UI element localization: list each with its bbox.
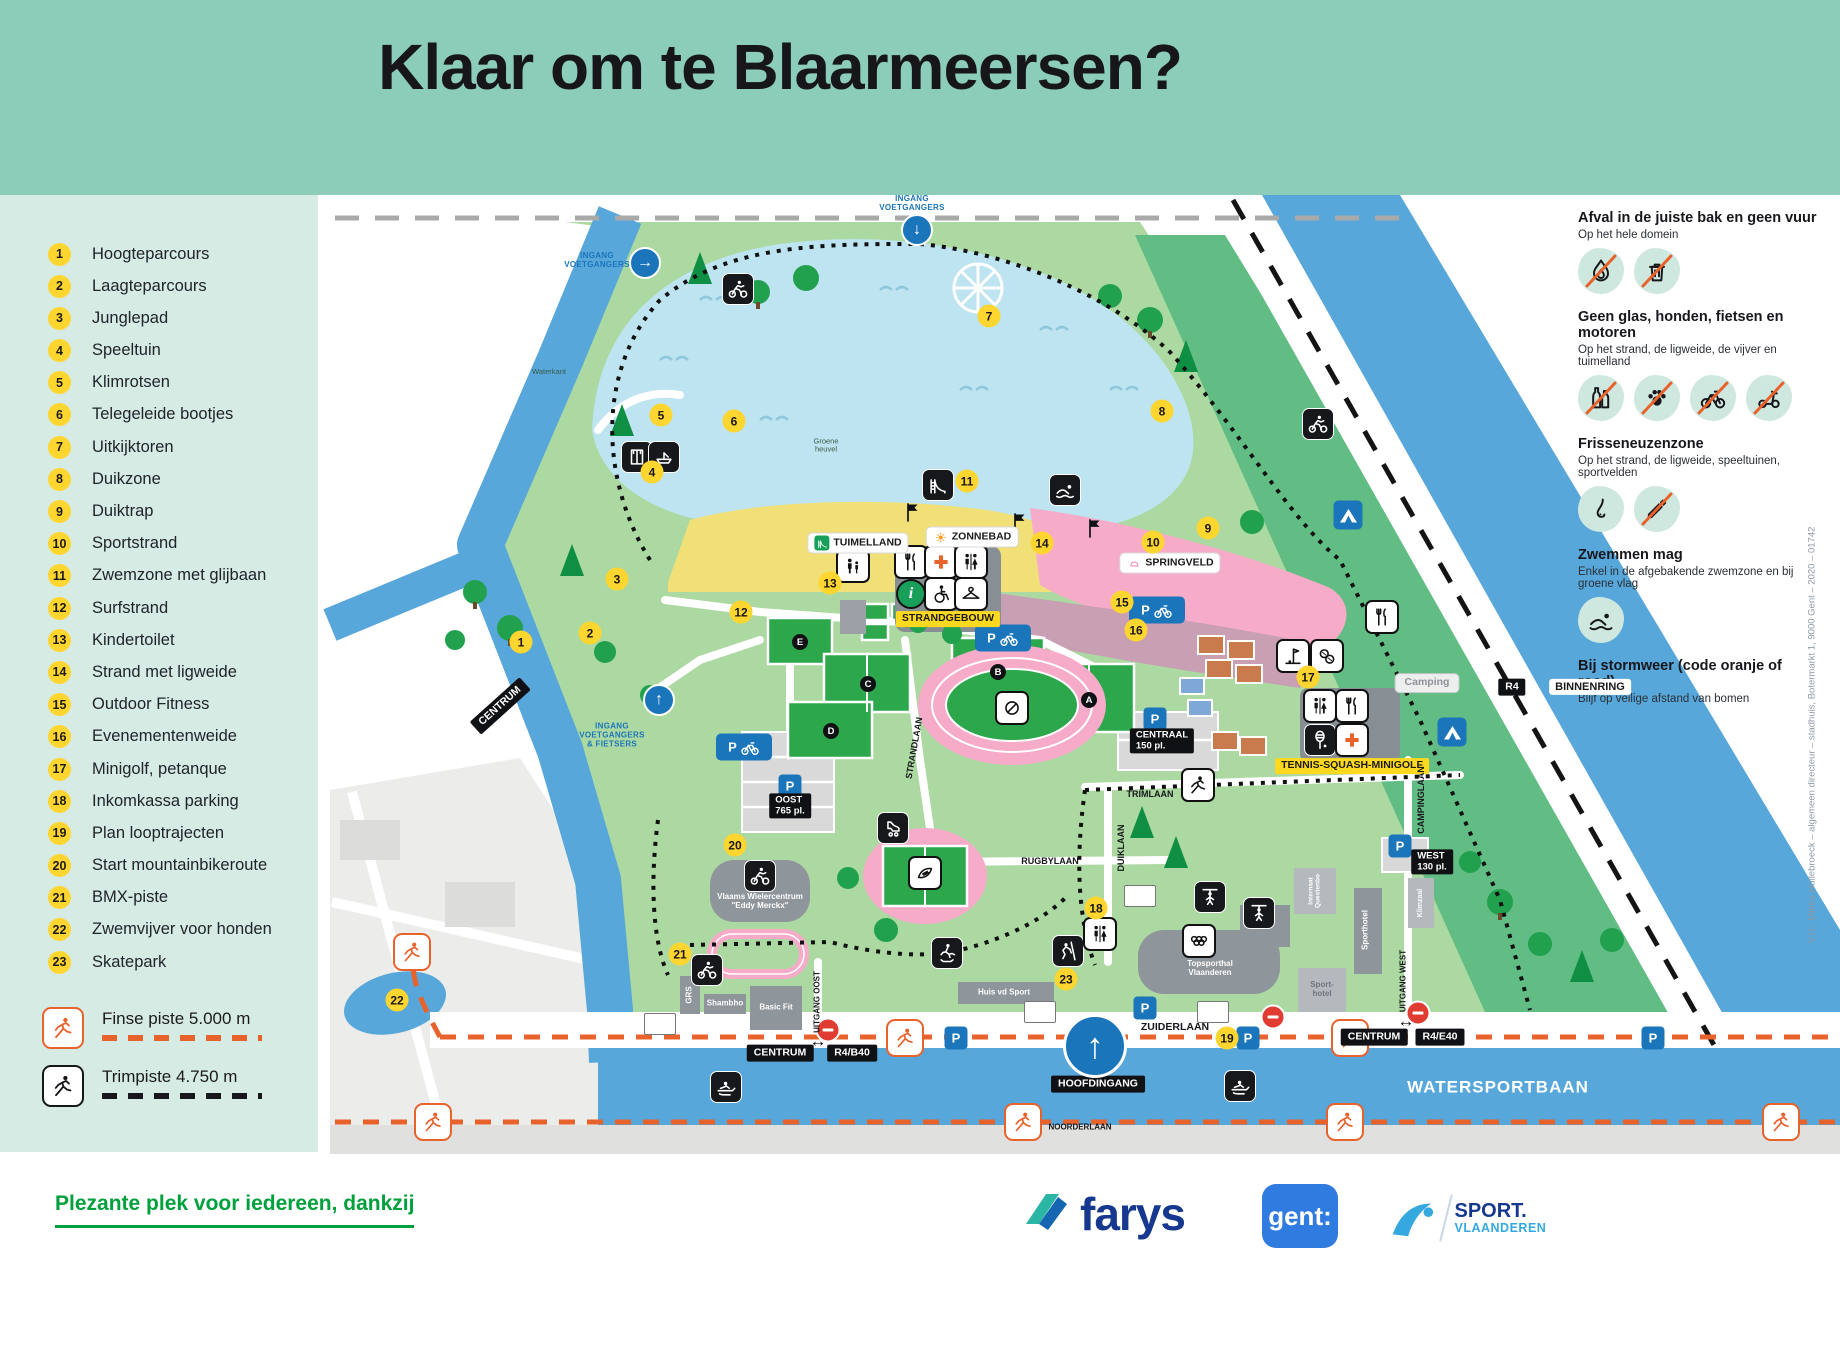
- legend-item-19: 19Plan looptrajecten: [48, 822, 272, 844]
- squash-icon: [1304, 724, 1336, 756]
- farys-icon: [1018, 1186, 1070, 1242]
- map-marker-20: 20: [724, 834, 747, 857]
- legend-item-18: 18Inkomkassa parking: [48, 790, 272, 812]
- roller-skate-icon: [877, 812, 909, 844]
- legend-number-badge: 6: [48, 403, 71, 426]
- entrance-arrow-icon: →: [629, 247, 661, 279]
- logo-divider: [1439, 1195, 1452, 1242]
- rule-title: Afval in de juiste bak en geen vuur: [1578, 210, 1818, 226]
- legend-item-label: Laagteparcours: [92, 277, 207, 296]
- legend-number-badge: 11: [48, 564, 71, 587]
- spring-icon: [1126, 556, 1141, 571]
- legend-number-badge: 4: [48, 339, 71, 362]
- legend-number-badge: 20: [48, 854, 71, 877]
- bus-stop-icon: [1124, 885, 1156, 907]
- rule-title: Frisseneuzenzone: [1578, 436, 1818, 452]
- map-label: STRANDGEBOUW: [896, 611, 1000, 627]
- flag-icon: [1082, 515, 1108, 541]
- legend-number-badge: 13: [48, 629, 71, 652]
- rule-section: Afval in de juiste bak en geen vuurOp he…: [1578, 210, 1818, 294]
- legend-item-label: Inkomkassa parking: [92, 792, 239, 811]
- route-label: Finse piste 5.000 m: [102, 1007, 262, 1029]
- map-label: Vlaams Wielercentrum "Eddy Merckx": [717, 893, 803, 911]
- restaurant-icon: [1335, 689, 1369, 723]
- legend-list: 1Hoogteparcours2Laagteparcours3Junglepad…: [48, 243, 272, 983]
- legend-number-badge: 14: [48, 661, 71, 684]
- rowing-icon: [1224, 1070, 1256, 1102]
- rule-subtitle: Op het strand, de ligweide, speeltuinen,…: [1578, 455, 1818, 479]
- no-litter-icon: [1634, 248, 1680, 294]
- rule-section: Geen glas, honden, fietsen en motorenOp …: [1578, 309, 1818, 421]
- map-label: OOST 765 pl.: [769, 793, 811, 818]
- legend-item-12: 12Surfstrand: [48, 597, 272, 619]
- camping-icon: [1334, 501, 1363, 530]
- playground-icon: [836, 549, 870, 583]
- legend-item-16: 16Evenementenweide: [48, 726, 272, 748]
- map-label: UITGANG WEST: [1400, 950, 1409, 1012]
- sport-wordmark-line2: VLAANDEREN: [1455, 1222, 1547, 1235]
- legend-number-badge: 15: [48, 693, 71, 716]
- no-fire-icon: [1578, 248, 1624, 294]
- legend-item-7: 7Uitkijktoren: [48, 436, 272, 458]
- legend-item-23: 23Skatepark: [48, 951, 272, 973]
- bike-parking-icon: P: [975, 625, 1031, 652]
- route-runner-icon: [42, 1065, 84, 1107]
- finse-piste-icon: [1762, 1103, 1800, 1141]
- rule-title: Zwemmen mag: [1578, 547, 1818, 563]
- legend-item-4: 4Speeltuin: [48, 340, 272, 362]
- route-dash-sample: [102, 1093, 262, 1099]
- first-aid-icon: [924, 545, 958, 579]
- finse-piste-icon: [393, 933, 431, 971]
- legend-item-label: Junglepad: [92, 309, 168, 328]
- waterslide-icon: [922, 469, 954, 501]
- map-label: UITGANG OOST: [814, 971, 823, 1033]
- map-label: CAMPINGLAAN: [1416, 766, 1426, 834]
- parking-icon: P: [1134, 997, 1157, 1020]
- map-label: INGANG VOETGANGERS & FIETSERS: [579, 723, 645, 750]
- no-entry-icon: [1261, 1005, 1286, 1030]
- map-label: Topsporthal Vlaanderen: [1187, 960, 1233, 978]
- map-label: WATERSPORTBAAN: [1407, 1077, 1589, 1096]
- legend-number-badge: 16: [48, 725, 71, 748]
- legend-item-label: Strand met ligweide: [92, 663, 237, 682]
- map-marker-5: 5: [650, 404, 673, 427]
- legend-item-3: 3Junglepad: [48, 307, 272, 329]
- legend-item-15: 15Outdoor Fitness: [48, 694, 272, 716]
- map-label: INGANG VOETGANGERS: [879, 195, 945, 213]
- map-label: CENTRUM: [1341, 1029, 1408, 1046]
- map-marker-15: 15: [1111, 591, 1134, 614]
- legend-item-label: Duiktrap: [92, 502, 153, 521]
- map-marker-23: 23: [1055, 968, 1078, 991]
- trimpiste-icon: [1181, 768, 1215, 802]
- athletics-icon: [995, 691, 1029, 725]
- legend-number-badge: 1: [48, 243, 71, 266]
- route-dash-sample: [102, 1035, 262, 1041]
- map-label: Basic Fit: [759, 1004, 792, 1013]
- gent-wordmark: gent:: [1268, 1201, 1332, 1232]
- wc-icon: [954, 545, 988, 579]
- legend-number-badge: 18: [48, 790, 71, 813]
- legend-number-badge: 7: [48, 436, 71, 459]
- finse-piste-icon: [886, 1019, 924, 1057]
- map-marker-9: 9: [1197, 517, 1220, 540]
- sport-vlaanderen-icon: [1385, 1192, 1437, 1244]
- map-label: Shambho: [707, 1000, 743, 1009]
- map-marker-12: 12: [730, 601, 753, 624]
- legend-item-label: Duikzone: [92, 470, 161, 489]
- legend-item-20: 20Start mountainbikeroute: [48, 855, 272, 877]
- map-marker-10: 10: [1142, 531, 1165, 554]
- map-marker-13: 13: [819, 572, 842, 595]
- route-legend: Finse piste 5.000 mTrimpiste 4.750 m: [42, 1007, 262, 1123]
- finse-piste-icon: [1004, 1103, 1042, 1141]
- route-legend-item: Trimpiste 4.750 m: [42, 1065, 262, 1107]
- rules-panel: Afval in de juiste bak en geen vuurOp he…: [1578, 210, 1818, 720]
- map-marker-17: 17: [1297, 666, 1320, 689]
- sun-icon: [933, 530, 948, 545]
- finse-piste-icon: [414, 1103, 452, 1141]
- gymnastics-icon: [1243, 897, 1275, 929]
- legend-item-label: Plan looptrajecten: [92, 824, 224, 843]
- bus-stop-icon: [1197, 1001, 1229, 1023]
- map-label: TUIMELLAND: [808, 534, 907, 553]
- rule-section: FrisseneuzenzoneOp het strand, de ligwei…: [1578, 436, 1818, 532]
- legend-item-11: 11Zwemzone met glijbaan: [48, 565, 272, 587]
- map-marker-22: 22: [386, 989, 409, 1012]
- field-letter-B: B: [990, 664, 1006, 680]
- legend-number-badge: 9: [48, 500, 71, 523]
- parking-icon: P: [945, 1027, 968, 1050]
- legend-item-label: Telegeleide bootjes: [92, 405, 233, 424]
- mountainbike-route-icon: [722, 273, 754, 305]
- legend-item-2: 2Laagteparcours: [48, 275, 272, 297]
- legend-number-badge: 2: [48, 275, 71, 298]
- sport-wordmark-line1: SPORT.: [1455, 1201, 1547, 1222]
- footer-tagline: Plezante plek voor iedereen, dankzij: [55, 1192, 414, 1228]
- map-marker-11: 11: [956, 470, 979, 493]
- route-runner-icon: [42, 1007, 84, 1049]
- map-marker-19: 19: [1216, 1027, 1239, 1050]
- sidebar-legend: 1Hoogteparcours2Laagteparcours3Junglepad…: [0, 195, 318, 1152]
- legend-number-badge: 19: [48, 822, 71, 845]
- map-label: Huis vd Sport: [978, 989, 1030, 998]
- rule-subtitle: Op het strand, de ligweide, de vijver en…: [1578, 344, 1818, 368]
- map-label: Sport- hotel: [1310, 981, 1334, 999]
- legend-item-10: 10Sportstrand: [48, 533, 272, 555]
- wc-icon: [1303, 689, 1337, 723]
- legend-item-8: 8Duikzone: [48, 468, 272, 490]
- rugby-icon: [908, 856, 942, 890]
- map-marker-3: 3: [606, 568, 629, 591]
- map-marker-14: 14: [1031, 532, 1054, 555]
- rule-title: Geen glas, honden, fietsen en motoren: [1578, 309, 1818, 341]
- field-letter-C: C: [860, 676, 876, 692]
- legend-item-label: Hoogteparcours: [92, 245, 209, 264]
- legend-item-label: Zwemvijver voor honden: [92, 920, 272, 939]
- cloakroom-icon: [954, 577, 988, 611]
- route-label: Trimpiste 4.750 m: [102, 1065, 262, 1087]
- map-label: R4/B40: [827, 1045, 877, 1062]
- slide-icon: [814, 536, 829, 551]
- bike-parking-icon: P: [716, 734, 772, 761]
- wc-icon: [1083, 917, 1117, 951]
- legend-item-label: Start mountainbikeroute: [92, 856, 267, 875]
- bus-stop-icon: [1024, 1001, 1056, 1023]
- finse-piste-icon: [1326, 1103, 1364, 1141]
- wheelchair-icon: [924, 577, 958, 611]
- legend-number-badge: 8: [48, 468, 71, 491]
- map-label: CENTRAAL 150 pl.: [1130, 728, 1194, 753]
- legend-item-1: 1Hoogteparcours: [48, 243, 272, 265]
- legend-number-badge: 21: [48, 886, 71, 909]
- entrance-arrow-icon: ↓: [901, 214, 933, 246]
- no-bikes-icon: [1690, 375, 1736, 421]
- map-label: ↔: [810, 1031, 827, 1050]
- map-marker-2: 2: [579, 622, 602, 645]
- legend-item-label: Minigolf, petanque: [92, 760, 227, 779]
- legend-item-14: 14Strand met ligweide: [48, 661, 272, 683]
- map-marker-16: 16: [1125, 619, 1148, 642]
- camping-icon: [1438, 718, 1467, 747]
- parking-icon: P: [1237, 1027, 1260, 1050]
- legend-item-label: Surfstrand: [92, 599, 168, 618]
- map-marker-1: 1: [510, 631, 533, 654]
- legend-item-label: Kindertoilet: [92, 631, 175, 650]
- parking-icon: P: [1144, 708, 1167, 731]
- parking-icon: P: [1389, 835, 1412, 858]
- legend-item-label: Evenementenweide: [92, 727, 237, 746]
- legend-item-label: Uitkijktoren: [92, 438, 174, 457]
- restaurant-icon: [1365, 600, 1399, 634]
- first-aid-icon: [1335, 723, 1369, 757]
- map-label: ZUIDERLAAN: [1141, 1022, 1209, 1034]
- legend-item-21: 21BMX-piste: [48, 887, 272, 909]
- map-marker-6: 6: [723, 410, 746, 433]
- legend-number-badge: 10: [48, 532, 71, 555]
- map-label: RUGBYLAAN: [1021, 856, 1079, 866]
- olympic-rings-icon: [1182, 924, 1216, 958]
- map-label: HOOFDINGANG: [1051, 1076, 1145, 1093]
- legend-item-22: 22Zwemvijver voor honden: [48, 919, 272, 941]
- sport-vlaanderen-logo: SPORT. VLAANDEREN: [1385, 1192, 1546, 1244]
- cycling-centre-icon: [744, 860, 776, 892]
- climbing-icon: [1052, 935, 1084, 967]
- map-label: Waterkant: [532, 368, 566, 376]
- map-marker-4: 4: [641, 461, 664, 484]
- map-label: SPRINGVELD: [1120, 554, 1219, 573]
- map-marker-18: 18: [1085, 897, 1108, 920]
- no-glass-icon: [1578, 375, 1624, 421]
- map-marker-7: 7: [978, 305, 1001, 328]
- map-label: WEST 130 pl.: [1411, 849, 1453, 874]
- map-label: Internaat Questenbo: [1308, 874, 1323, 908]
- parking-icon: P: [1642, 1027, 1665, 1050]
- map-label: ZONNEBAD: [927, 528, 1018, 547]
- skateboard-icon: [931, 937, 963, 969]
- map-label: TENNIS-SQUASH-MINIGOLF: [1275, 758, 1429, 774]
- poster: Klaar om te Blaarmeersen? 1Hoogteparcour…: [0, 0, 1840, 1352]
- map-label: DUIKLAAN: [1116, 825, 1126, 872]
- legend-number-badge: 23: [48, 951, 71, 974]
- rowing-icon: [710, 1071, 742, 1103]
- legend-item-17: 17Minigolf, petanque: [48, 758, 272, 780]
- map-label: ↔: [1398, 1011, 1415, 1030]
- rule-subtitle: Enkel in de afgebakende zwemzone en bij …: [1578, 566, 1818, 590]
- legend-number-badge: 17: [48, 758, 71, 781]
- legend-item-label: Skatepark: [92, 953, 166, 972]
- bus-stop-icon: [644, 1013, 676, 1035]
- map-label: BINNENRING: [1549, 679, 1631, 695]
- map-label: Sporthotel: [1362, 910, 1371, 950]
- rule-section: Zwemmen magEnkel in de afgebakende zwemz…: [1578, 547, 1818, 643]
- map-marker-8: 8: [1151, 400, 1174, 423]
- farys-wordmark: farys: [1080, 1187, 1185, 1241]
- no-dogs-icon: [1634, 375, 1680, 421]
- no-scooters-icon: [1746, 375, 1792, 421]
- farys-logo: farys: [1018, 1186, 1185, 1242]
- legend-item-label: Zwemzone met glijbaan: [92, 566, 266, 585]
- swim-zone-icon: [1049, 474, 1081, 506]
- page-title: Klaar om te Blaarmeersen?: [320, 30, 1240, 104]
- map-label: TRIMLAAN: [1127, 789, 1174, 799]
- legend-item-label: BMX-piste: [92, 888, 168, 907]
- map-label: INGANG VOETGANGERS: [564, 252, 630, 270]
- map-label: NOORDERLAAN: [1048, 1124, 1111, 1133]
- map-label: Camping: [1395, 673, 1460, 693]
- entrance-arrow-icon: ↑: [643, 684, 675, 716]
- map-label: GRS: [686, 986, 695, 1003]
- info-icon: i: [896, 579, 926, 609]
- legend-item-label: Speeltuin: [92, 341, 161, 360]
- legend-number-badge: 12: [48, 597, 71, 620]
- gent-logo: gent:: [1262, 1184, 1338, 1248]
- legend-item-5: 5Klimrotsen: [48, 372, 272, 394]
- legend-item-9: 9Duiktrap: [48, 501, 272, 523]
- main-entrance-icon: ↑: [1063, 1014, 1127, 1078]
- legend-number-badge: 5: [48, 371, 71, 394]
- route-legend-item: Finse piste 5.000 m: [42, 1007, 262, 1049]
- map-label: R4: [1498, 679, 1525, 696]
- fresh-nose-icon: [1578, 486, 1624, 532]
- legend-item-6: 6Telegeleide bootjes: [48, 404, 272, 426]
- map-marker-21: 21: [669, 943, 692, 966]
- legend-item-label: Outdoor Fitness: [92, 695, 209, 714]
- gymnastics-icon: [1194, 881, 1226, 913]
- legend-number-badge: 3: [48, 307, 71, 330]
- legend-number-badge: 22: [48, 918, 71, 941]
- field-letter-A: A: [1081, 692, 1097, 708]
- rule-subtitle: Op het hele domein: [1578, 229, 1818, 241]
- no-smoking-icon: [1634, 486, 1680, 532]
- legend-item-label: Sportstrand: [92, 534, 177, 553]
- field-letter-E: E: [792, 634, 808, 650]
- mountainbike-route-icon: [1302, 408, 1334, 440]
- field-letter-D: D: [823, 723, 839, 739]
- legend-item-13: 13Kindertoilet: [48, 629, 272, 651]
- map-label: R4/E40: [1415, 1029, 1464, 1046]
- credit-line: V.U.: Mieke Hullebroeck – algemeen direc…: [1807, 527, 1818, 944]
- map-label: Klimzaal: [1417, 889, 1425, 917]
- swimmer-icon: [1578, 597, 1624, 643]
- legend-item-label: Klimrotsen: [92, 373, 170, 392]
- map-label: CENTRUM: [747, 1045, 814, 1062]
- bmx-icon: [691, 954, 723, 986]
- flag-icon: [900, 499, 926, 525]
- map-label: Groene heuvel: [813, 438, 838, 455]
